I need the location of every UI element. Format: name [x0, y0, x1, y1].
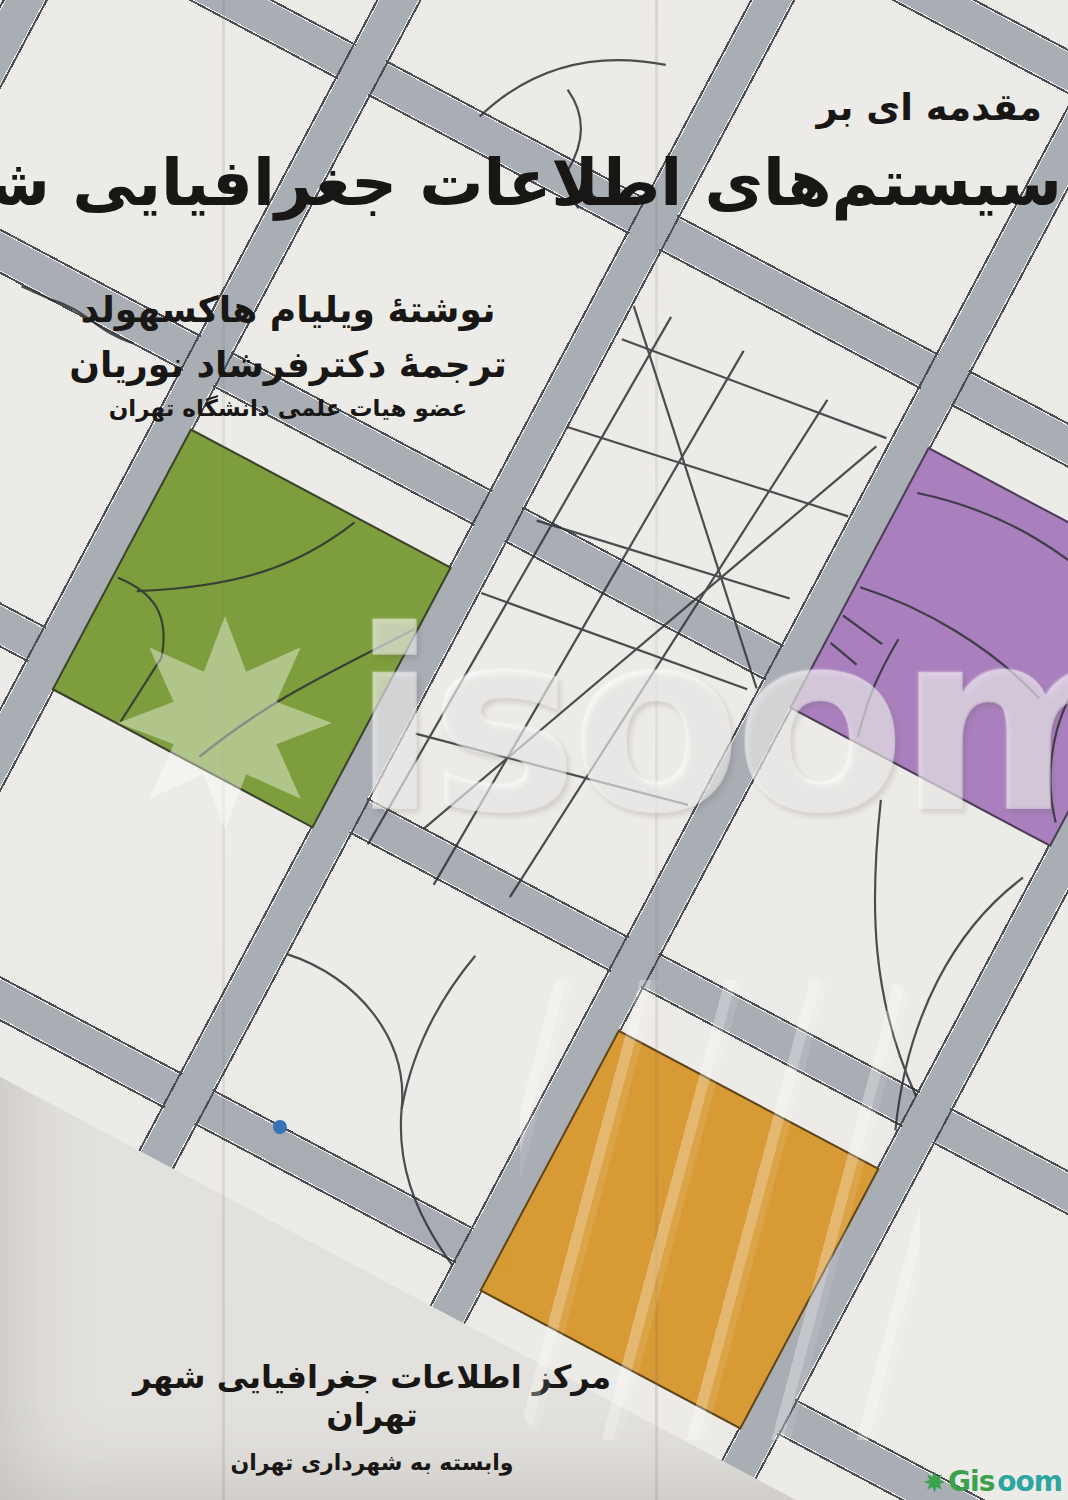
pre-title: مقدمه ای بر: [816, 86, 1042, 129]
street-map: [0, 0, 1068, 1500]
blue-dot-mark: [270, 1118, 289, 1137]
publisher-block: مرکز اطلاعات جغرافیایی شهر تهران وابسته …: [92, 1358, 652, 1475]
block-detail-lines: [0, 0, 1068, 1500]
book-cover: isoom مقدمه ای بر سیستم‌های اطلاعات جغرا…: [0, 0, 1068, 1500]
translator-line: ترجمهٔ دکترفرشاد نوریان: [48, 338, 528, 392]
cover-crease-left: [222, 0, 225, 1500]
author-line: نوشتهٔ ویلیام هاکسهولد: [48, 282, 528, 338]
byline-block: نوشتهٔ ویلیام هاکسهولد ترجمهٔ دکترفرشاد …: [48, 282, 528, 424]
publisher-name: مرکز اطلاعات جغرافیایی شهر تهران: [92, 1358, 652, 1434]
gisoom-logo-text-green: Gis: [948, 1468, 994, 1496]
cover-crease-center: [655, 0, 658, 1500]
book-title: سیستم‌های اطلاعات جغرافیایی شهری: [0, 146, 1062, 220]
publisher-affiliation: وابسته به شهرداری تهران: [92, 1450, 652, 1475]
affiliation-line: عضو هیات علمی دانشگاه تهران: [48, 392, 528, 424]
gisoom-logo-text-teal: oom: [997, 1468, 1062, 1496]
gisoom-logo-star-icon: [924, 1472, 945, 1493]
gisoom-logo: Gis oom: [924, 1468, 1062, 1496]
